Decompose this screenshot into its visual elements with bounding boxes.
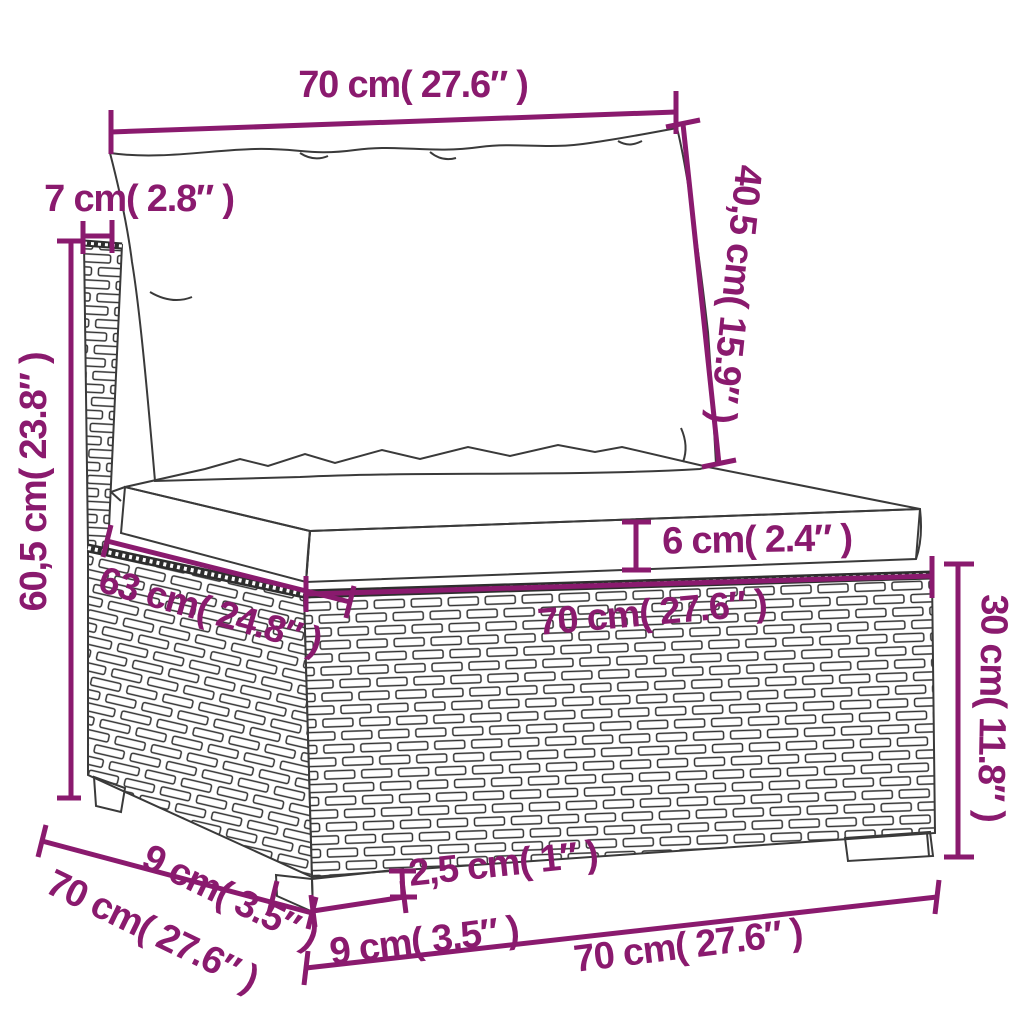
seat-cushion (111, 445, 921, 582)
back-cushion-wrinkle (430, 152, 456, 159)
seat-cushion-corner-crease (306, 531, 310, 582)
dim-seat-cushion-thickness (622, 522, 651, 570)
dim-foot-width (311, 881, 406, 927)
dim-label-cushion-thickness: 6 cm( 2.4″ ) (662, 519, 852, 560)
seat-cushion-corner-fold (111, 487, 125, 501)
dim-label-base-height: 30 cm( 11.8″ ) (971, 594, 1013, 822)
back-post-top-braid (84, 243, 122, 246)
back-cushion-wrinkle (150, 292, 192, 300)
front-right-foot-crease (927, 833, 929, 856)
back-post (84, 242, 122, 549)
back-cushion-wrinkle (618, 141, 642, 144)
dim-total-height (57, 241, 84, 798)
dim-label-top-width: 70 cm( 27.6″ ) (298, 66, 528, 104)
back-post-weave (84, 242, 122, 549)
dim-label-back-post-width: 7 cm( 2.8″ ) (44, 180, 234, 218)
back-cushion-wrinkle (300, 153, 328, 158)
back-cushion-wrinkle (681, 428, 686, 462)
dim-label-total-height: 60,5 cm( 23.8″ ) (15, 353, 53, 612)
furniture-dimension-diagram: 70 cm( 27.6″ ) 40,5 cm( 15.9″ ) 7 cm( 2.… (0, 0, 1024, 1024)
